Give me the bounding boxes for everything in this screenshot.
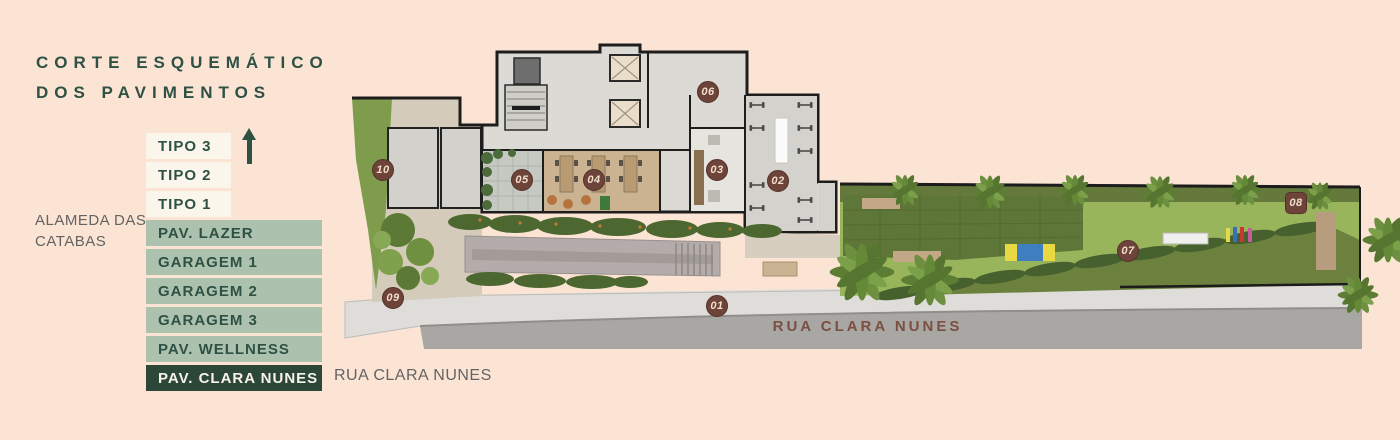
plan-marker-01: 01 bbox=[706, 295, 728, 317]
plan-marker-04: 04 bbox=[583, 169, 605, 191]
site-plan: RUA CLARA NUNES 01020304050607080910 bbox=[0, 0, 1400, 440]
plan-marker-06: 06 bbox=[697, 81, 719, 103]
plan-marker-02: 02 bbox=[767, 170, 789, 192]
plan-marker-09: 09 bbox=[382, 287, 404, 309]
plan-marker-10: 10 bbox=[372, 159, 394, 181]
site-plan-drawing bbox=[0, 0, 1400, 440]
plan-marker-07: 07 bbox=[1117, 240, 1139, 262]
plan-marker-08: 08 bbox=[1285, 192, 1307, 214]
plan-marker-05: 05 bbox=[511, 169, 533, 191]
plan-marker-03: 03 bbox=[706, 159, 728, 181]
street-label-rua-clara-nunes: RUA CLARA NUNES bbox=[760, 318, 975, 335]
